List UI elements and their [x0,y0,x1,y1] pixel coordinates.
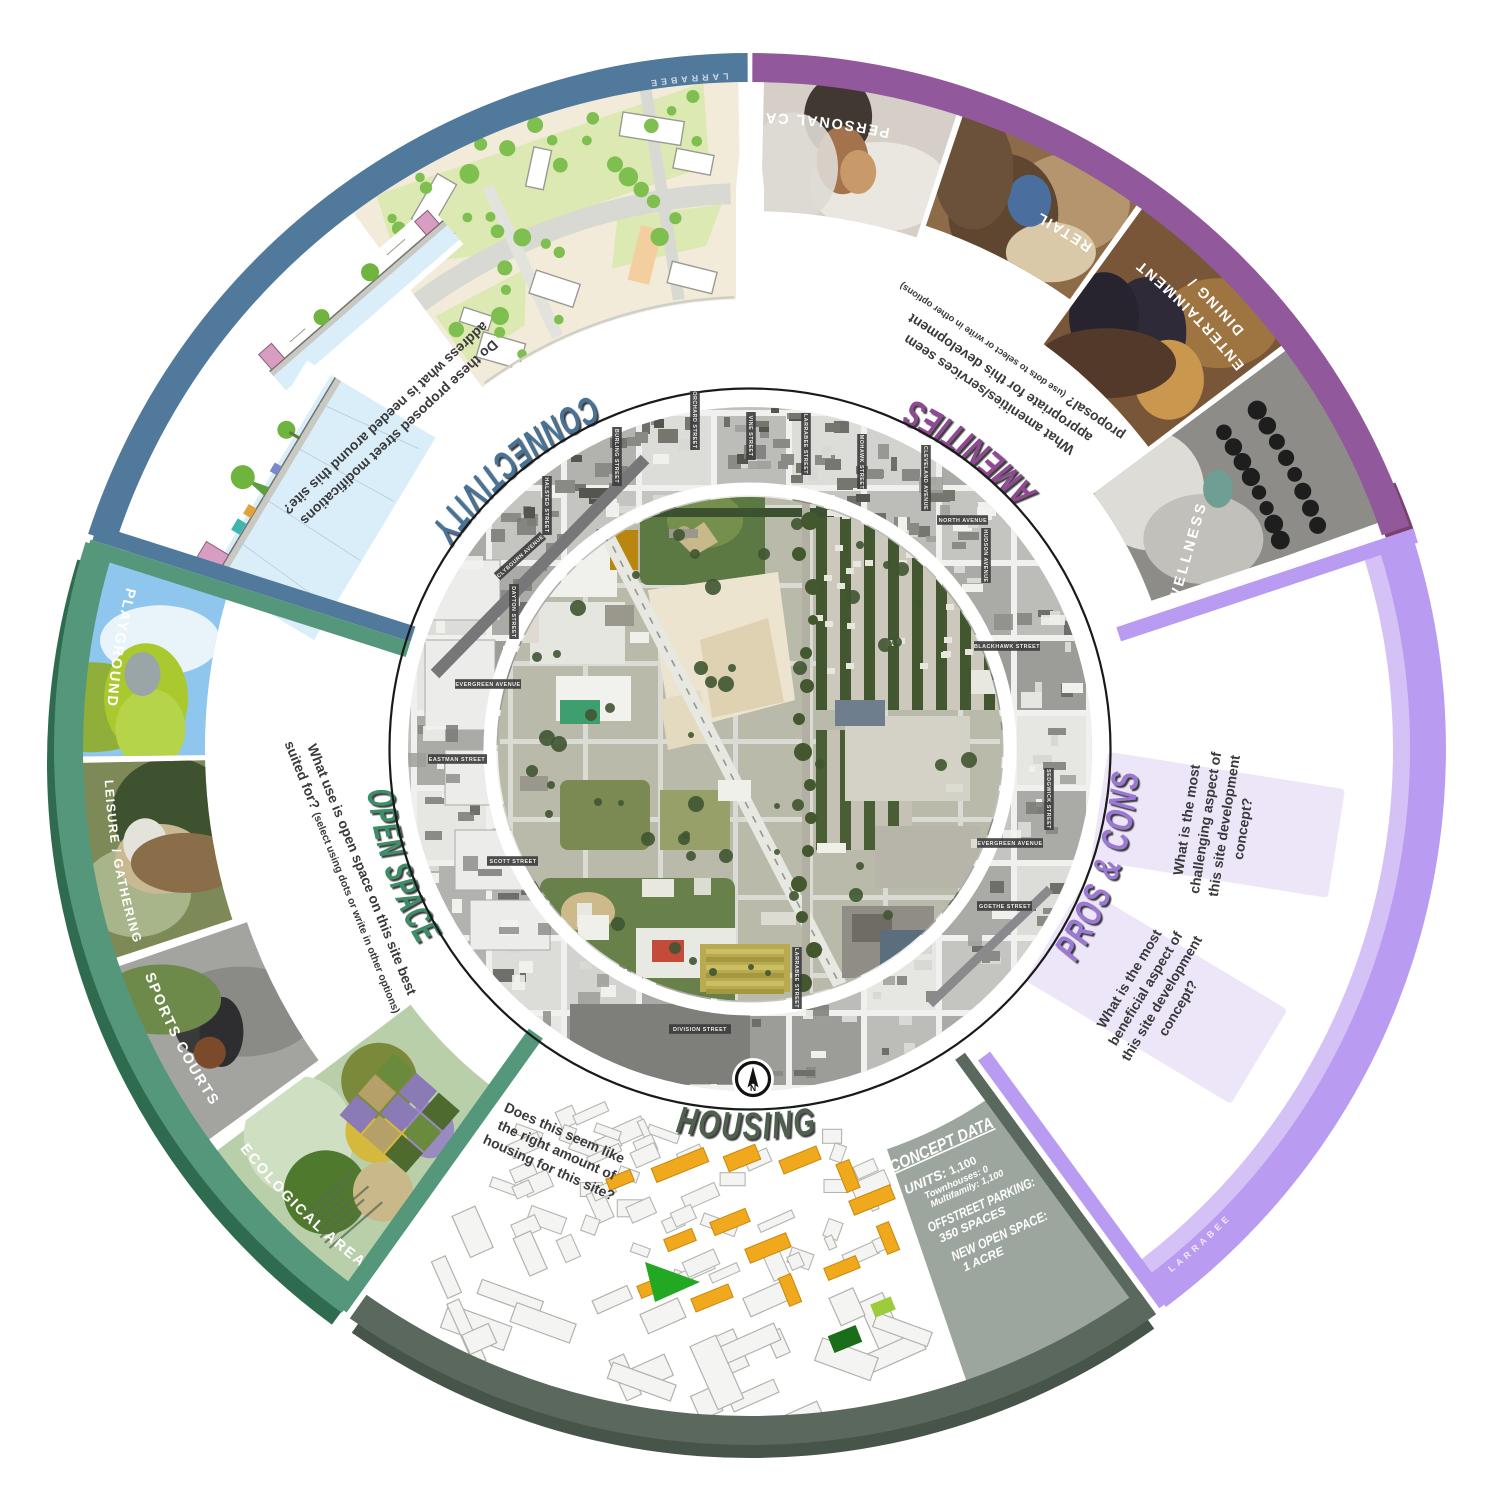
svg-text:HUDSON AVENUE: HUDSON AVENUE [982,529,988,582]
svg-text:SCOTT STREET: SCOTT STREET [489,859,536,865]
svg-text:BURLING STREET: BURLING STREET [613,429,619,484]
svg-text:ORCHARD STREET: ORCHARD STREET [691,391,697,449]
svg-text:EVERGREEN AVENUE: EVERGREEN AVENUE [977,841,1042,847]
svg-text:BLACKHAWK STREET: BLACKHAWK STREET [974,644,1040,650]
svg-text:N: N [750,1083,756,1093]
svg-text:HALSTED STREET: HALSTED STREET [543,477,549,532]
svg-text:DAYTON STREET: DAYTON STREET [510,586,516,638]
svg-text:GOETHE STREET: GOETHE STREET [979,904,1031,910]
svg-text:EVERGREEN AVENUE: EVERGREEN AVENUE [455,682,520,688]
svg-text:EASTMAN STREET: EASTMAN STREET [429,757,486,763]
svg-text:LARRABEE STREET: LARRABEE STREET [802,414,808,474]
svg-text:SEDGWICK STREET: SEDGWICK STREET [1045,769,1051,829]
svg-text:CLEVELAND AVENUE: CLEVELAND AVENUE [922,446,928,510]
svg-text:VINE STREET: VINE STREET [747,416,753,457]
svg-text:LARRABEE STREET: LARRABEE STREET [793,948,799,1008]
svg-text:MOHAWK STREET: MOHAWK STREET [858,435,864,490]
svg-text:NORTH AVENUE: NORTH AVENUE [939,518,988,524]
svg-text:DIVISION STREET: DIVISION STREET [673,1027,727,1033]
